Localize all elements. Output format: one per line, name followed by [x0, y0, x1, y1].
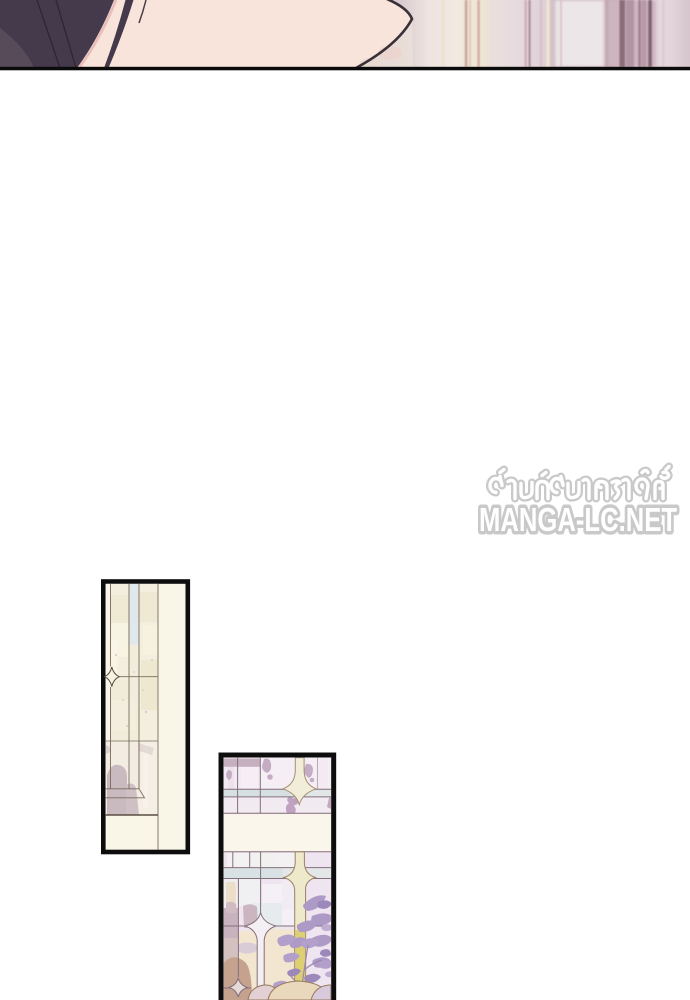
svg-text:MANGA-LC.NET: MANGA-LC.NET: [479, 501, 677, 538]
